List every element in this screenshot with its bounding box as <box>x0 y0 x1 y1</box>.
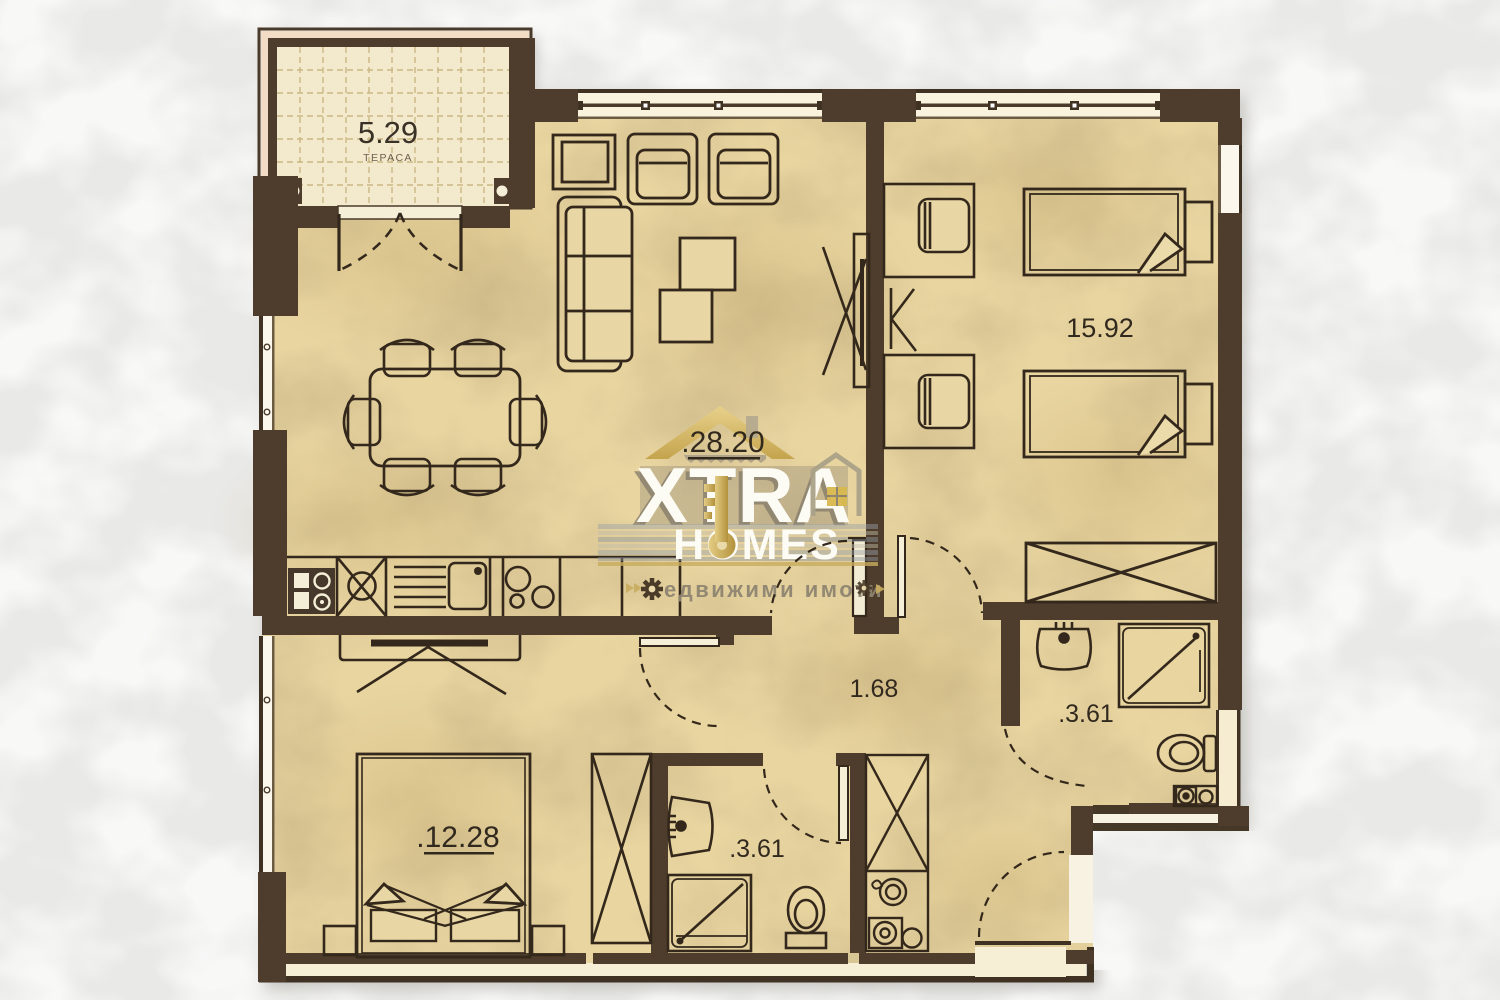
svg-text:HOMES: HOMES <box>673 521 841 569</box>
svg-text:.3.61: .3.61 <box>1058 700 1114 728</box>
svg-text:15.92: 15.92 <box>1066 313 1134 343</box>
svg-text:1.68: 1.68 <box>850 675 899 703</box>
svg-text:5.29: 5.29 <box>358 115 418 150</box>
svg-text:.12.28: .12.28 <box>416 821 499 854</box>
svg-text:ТЕРАСА: ТЕРАСА <box>363 152 413 164</box>
svg-text:.28.20: .28.20 <box>681 426 764 459</box>
svg-text:.3.61: .3.61 <box>729 835 785 863</box>
